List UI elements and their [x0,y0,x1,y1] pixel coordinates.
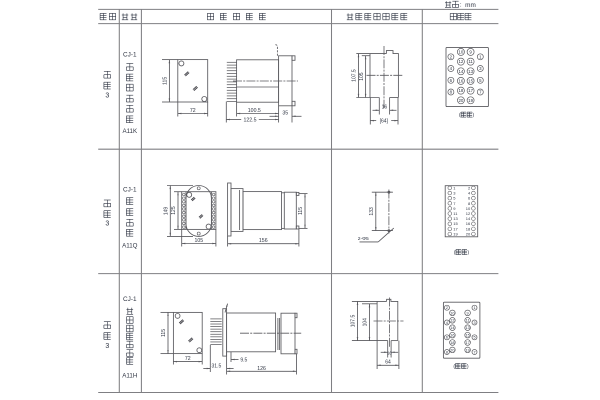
svg-text:17: 17 [465,341,469,345]
svg-text:2: 2 [446,306,448,310]
svg-text:107.5: 107.5 [351,69,357,82]
svg-text:[64]: [64] [380,119,389,125]
svg-text:(: ( [454,250,456,256]
svg-text:20: 20 [466,231,471,236]
svg-text:16: 16 [387,350,392,355]
svg-text:16: 16 [382,104,388,110]
svg-text:3: 3 [105,343,109,350]
svg-text:18: 18 [450,341,454,345]
svg-text:35: 35 [282,110,288,116]
svg-text:20: 20 [458,98,463,103]
svg-text:): ) [467,364,469,370]
svg-text:104: 104 [363,318,369,327]
svg-text:3: 3 [105,220,109,227]
svg-text:3: 3 [473,321,475,325]
svg-text:CJ-1: CJ-1 [123,52,137,59]
svg-text:105: 105 [194,238,203,244]
svg-text:3: 3 [105,93,109,100]
svg-text:6: 6 [446,336,448,340]
svg-text:A11K: A11K [122,128,138,135]
svg-text:115: 115 [298,207,304,215]
svg-text:122.5: 122.5 [244,117,257,123]
svg-text:): ) [467,250,469,256]
svg-text:115: 115 [161,329,167,337]
svg-text:18: 18 [458,88,463,93]
svg-text:CJ-1: CJ-1 [123,187,137,194]
svg-text:14: 14 [450,326,454,330]
svg-text:CJ-1: CJ-1 [123,296,137,303]
svg-text:10: 10 [458,49,463,54]
svg-text::: : [460,2,462,9]
svg-text:12: 12 [450,319,454,323]
svg-text:A11Q: A11Q [122,242,138,249]
svg-text:13: 13 [465,326,469,330]
svg-text:(: ( [453,364,455,370]
svg-text:9.5: 9.5 [240,357,247,363]
svg-text:125: 125 [171,206,177,215]
svg-text:11: 11 [468,59,473,64]
svg-text:7: 7 [473,350,475,354]
svg-text:72: 72 [185,356,191,362]
svg-text:16: 16 [458,78,463,83]
svg-text:107.5: 107.5 [351,315,357,328]
svg-text:8: 8 [446,350,448,354]
svg-text:19: 19 [465,348,469,352]
svg-text:19: 19 [468,98,473,103]
svg-text:2-Φ5: 2-Φ5 [358,236,369,242]
svg-text:105: 105 [359,72,365,81]
svg-text:(: ( [459,112,461,118]
svg-text:1: 1 [473,306,475,310]
svg-text:12: 12 [458,59,463,64]
svg-text:A11H: A11H [122,373,137,380]
svg-text:4: 4 [446,321,448,325]
svg-text:13: 13 [468,69,473,74]
svg-text:156: 156 [259,238,268,244]
svg-text:15: 15 [468,78,473,83]
svg-text:5: 5 [473,336,475,340]
svg-text:64: 64 [385,359,391,365]
svg-text:17: 17 [468,88,473,93]
svg-text:100.5: 100.5 [248,108,261,114]
svg-text:10: 10 [450,311,454,315]
svg-text:11: 11 [466,319,470,323]
svg-text:14: 14 [458,69,463,74]
svg-text:126: 126 [257,366,266,372]
svg-text:20: 20 [450,348,454,352]
svg-text:149: 149 [163,207,169,216]
svg-text:115: 115 [162,77,168,85]
svg-text:19: 19 [453,231,458,236]
svg-text:72: 72 [190,108,196,114]
svg-text:9: 9 [467,311,469,315]
svg-text:15: 15 [465,333,469,337]
svg-text:133: 133 [369,207,375,216]
svg-text:mm: mm [465,2,476,9]
svg-text:31.5: 31.5 [212,363,222,369]
svg-text:): ) [472,112,474,118]
svg-text:16: 16 [450,333,454,337]
